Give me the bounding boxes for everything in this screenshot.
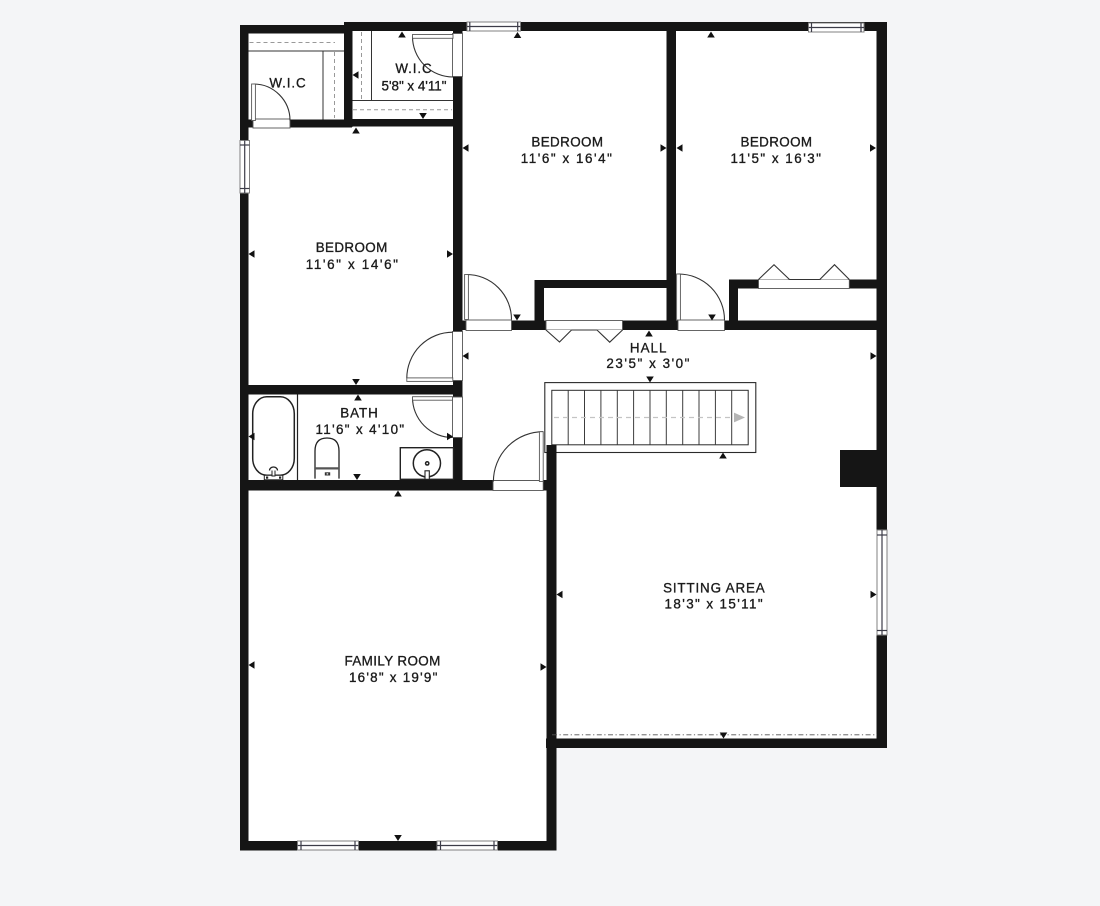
- svg-text:11'6" x 16'4": 11'6" x 16'4": [521, 151, 614, 166]
- svg-text:HALL: HALL: [630, 341, 668, 356]
- svg-text:BATH: BATH: [340, 406, 379, 421]
- svg-text:BEDROOM: BEDROOM: [741, 135, 813, 150]
- svg-text:18'3" x 15'11": 18'3" x 15'11": [665, 596, 765, 611]
- svg-text:23'5" x 3'0": 23'5" x 3'0": [606, 356, 691, 371]
- svg-text:BEDROOM: BEDROOM: [316, 240, 388, 255]
- svg-text:W.I.C: W.I.C: [395, 61, 432, 76]
- svg-text:16'8" x 19'9": 16'8" x 19'9": [349, 670, 439, 685]
- svg-text:BEDROOM: BEDROOM: [531, 135, 603, 150]
- svg-text:W.I.C: W.I.C: [269, 75, 306, 90]
- svg-text:FAMILY ROOM: FAMILY ROOM: [345, 654, 441, 669]
- svg-text:SITTING AREA: SITTING AREA: [663, 580, 765, 595]
- svg-text:5'8" x 4'11": 5'8" x 4'11": [382, 78, 447, 93]
- svg-text:11'5" x 16'3": 11'5" x 16'3": [731, 151, 823, 166]
- svg-text:11'6" x 4'10": 11'6" x 4'10": [316, 422, 406, 437]
- svg-text:11'6" x 14'6": 11'6" x 14'6": [306, 257, 400, 272]
